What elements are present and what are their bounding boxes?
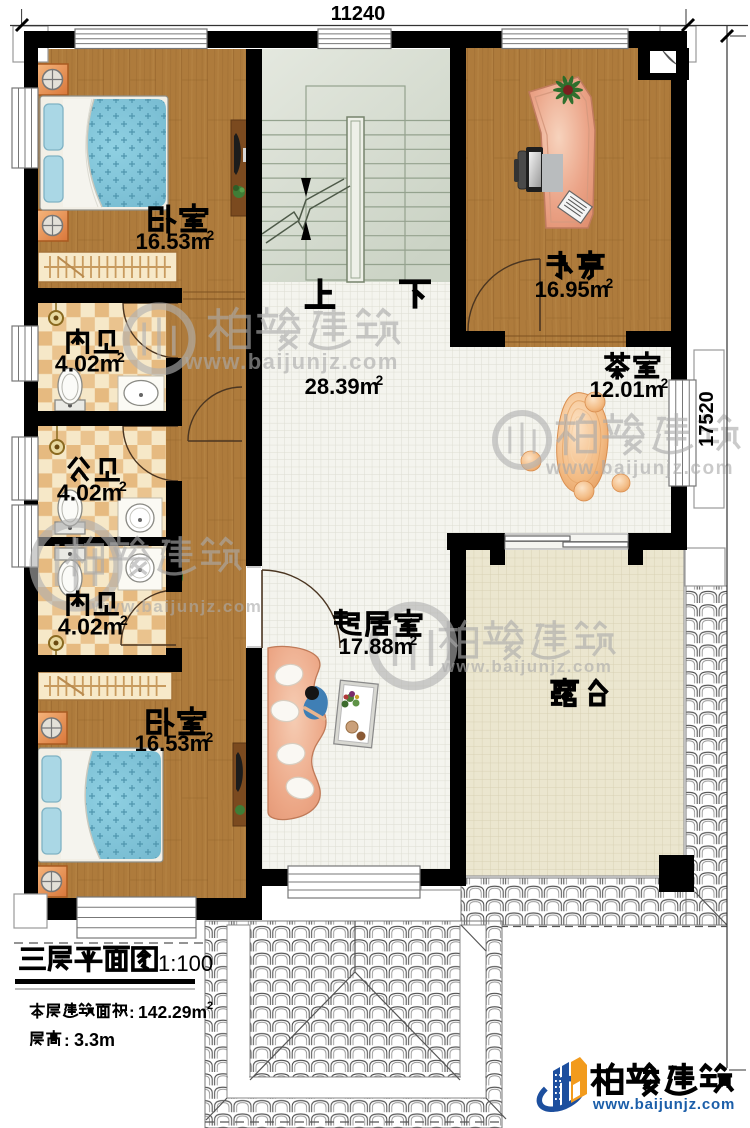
svg-text:16.53m: 16.53m <box>135 731 210 756</box>
svg-text:2: 2 <box>207 228 215 243</box>
svg-text:www.baijunjz.com: www.baijunjz.com <box>184 349 399 374</box>
svg-text:11240: 11240 <box>331 3 386 25</box>
svg-text:www.baijunjz.com: www.baijunjz.com <box>545 458 734 479</box>
svg-text::: : <box>64 1031 70 1050</box>
svg-text:2: 2 <box>117 350 125 366</box>
svg-text:www.baijunjz.com: www.baijunjz.com <box>441 657 613 676</box>
svg-text:12.01m: 12.01m <box>590 377 665 402</box>
svg-text:142.29m: 142.29m <box>138 1002 207 1022</box>
svg-text:28.39m: 28.39m <box>305 374 380 399</box>
svg-text:3.3m: 3.3m <box>74 1030 115 1050</box>
svg-text:www.baijunjz.com: www.baijunjz.com <box>592 1096 735 1113</box>
svg-text:2: 2 <box>376 373 384 388</box>
svg-text:1:100: 1:100 <box>158 951 213 976</box>
svg-text:2: 2 <box>207 1000 213 1012</box>
svg-text:17520: 17520 <box>696 391 718 447</box>
svg-text:2: 2 <box>606 276 614 291</box>
svg-text:2: 2 <box>206 730 214 745</box>
svg-text:17.88m: 17.88m <box>339 634 414 659</box>
svg-text:2: 2 <box>120 613 128 629</box>
svg-text:4.02m: 4.02m <box>57 479 122 505</box>
svg-text:4.02m: 4.02m <box>55 350 120 376</box>
svg-text::: : <box>129 1003 135 1022</box>
svg-text:16.95m: 16.95m <box>535 277 610 302</box>
svg-text:2: 2 <box>661 376 669 391</box>
svg-text:2: 2 <box>119 479 127 495</box>
svg-text:16.53m: 16.53m <box>136 229 211 254</box>
svg-text:4.02m: 4.02m <box>58 613 123 639</box>
svg-text:2: 2 <box>410 633 418 648</box>
